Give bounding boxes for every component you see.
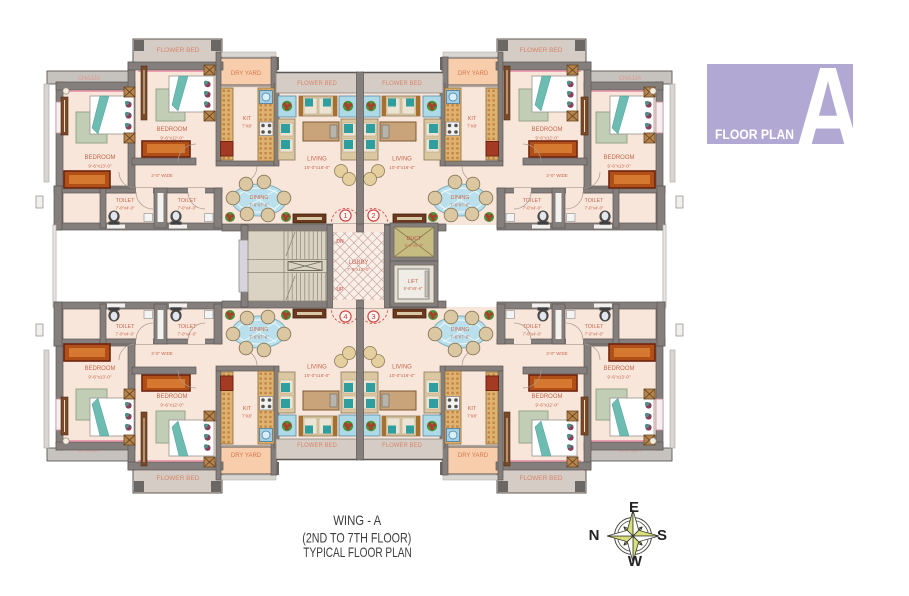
svg-text:3'-0" WIDE: 3'-0" WIDE xyxy=(151,351,172,356)
svg-text:9'-6"x12'-0": 9'-6"x12'-0" xyxy=(535,136,559,141)
svg-text:7'X8': 7'X8' xyxy=(467,414,477,419)
svg-text:9'-6"x12'-0": 9'-6"x12'-0" xyxy=(160,403,184,408)
svg-text:7'-6"X7'-6": 7'-6"X7'-6" xyxy=(249,335,269,340)
svg-text:7'X8': 7'X8' xyxy=(242,414,252,419)
svg-text:KIT: KIT xyxy=(243,116,252,122)
svg-text:UP: UP xyxy=(337,287,345,293)
svg-text:TOILET: TOILET xyxy=(178,198,197,204)
svg-text:S: S xyxy=(657,527,667,544)
svg-text:BEDROOM: BEDROOM xyxy=(531,394,562,400)
svg-text:FLOWER BED: FLOWER BED xyxy=(157,475,200,482)
svg-text:DRY YARD: DRY YARD xyxy=(231,71,262,77)
svg-text:BEDROOM: BEDROOM xyxy=(156,127,187,133)
svg-text:9'-6"x12'-0": 9'-6"x12'-0" xyxy=(160,136,184,141)
svg-text:FLOWER BED: FLOWER BED xyxy=(297,443,337,449)
svg-text:DRY YARD: DRY YARD xyxy=(458,71,489,77)
svg-text:7'-0"x4'-0": 7'-0"x4'-0" xyxy=(523,331,542,336)
svg-text:KIT: KIT xyxy=(468,116,477,122)
svg-text:7'-6"X7'-6": 7'-6"X7'-6" xyxy=(450,203,470,208)
svg-text:BEDROOM: BEDROOM xyxy=(531,127,562,133)
svg-text:7'X8': 7'X8' xyxy=(467,124,477,129)
svg-text:FLOWER BED: FLOWER BED xyxy=(297,81,337,87)
svg-text:LOBBY: LOBBY xyxy=(348,260,368,266)
svg-text:7'-0"x4'-0": 7'-0"x4'-0" xyxy=(585,205,604,210)
svg-text:FLOWER BED: FLOWER BED xyxy=(520,475,563,482)
svg-text:7'-6"X7'-6": 7'-6"X7'-6" xyxy=(450,335,470,340)
svg-text:CHAJJA: CHAJJA xyxy=(619,76,642,82)
svg-text:3: 3 xyxy=(371,312,375,321)
svg-text:9'-6"x13'-0": 9'-6"x13'-0" xyxy=(88,375,112,380)
svg-text:9'-6"x13'-0": 9'-6"x13'-0" xyxy=(607,164,631,169)
svg-text:TOILET: TOILET xyxy=(523,198,542,204)
svg-text:LIFT: LIFT xyxy=(408,279,419,285)
svg-text:4: 4 xyxy=(343,312,347,321)
svg-text:KIT: KIT xyxy=(243,406,252,412)
svg-text:9'-6"x12'-0": 9'-6"x12'-0" xyxy=(535,403,559,408)
svg-text:7'-0"x4'-0": 7'-0"x4'-0" xyxy=(178,331,197,336)
svg-text:WING - A: WING - A xyxy=(333,513,382,528)
svg-text:E: E xyxy=(629,499,639,516)
svg-text:W: W xyxy=(628,553,643,570)
svg-text:DINING: DINING xyxy=(451,195,470,201)
svg-text:BEDROOM: BEDROOM xyxy=(156,394,187,400)
svg-text:10'-0"x16'-0": 10'-0"x16'-0" xyxy=(389,373,415,378)
svg-text:DRY YARD: DRY YARD xyxy=(458,453,489,459)
svg-text:LIVING: LIVING xyxy=(307,157,327,163)
svg-text:TOILET: TOILET xyxy=(116,324,135,330)
svg-text:10'-0"x16'-0": 10'-0"x16'-0" xyxy=(389,165,415,170)
svg-text:TOILET: TOILET xyxy=(585,324,604,330)
svg-text:(2ND TO 7TH FLOOR): (2ND TO 7TH FLOOR) xyxy=(302,531,411,546)
svg-text:7'-0"x4'-0": 7'-0"x4'-0" xyxy=(523,205,542,210)
svg-text:DRY YARD: DRY YARD xyxy=(231,453,262,459)
svg-text:5'-6"x5'-6": 5'-6"x5'-6" xyxy=(405,243,424,248)
svg-text:10'-0"x16'-0": 10'-0"x16'-0" xyxy=(304,373,330,378)
svg-text:7'-0"x4'-0": 7'-0"x4'-0" xyxy=(116,205,135,210)
svg-text:10'-0"x16'-0": 10'-0"x16'-0" xyxy=(304,165,330,170)
svg-text:BEDROOM: BEDROOM xyxy=(603,366,634,372)
svg-text:TOILET: TOILET xyxy=(585,198,604,204)
svg-text:LIVING: LIVING xyxy=(307,365,327,371)
svg-text:LIVING: LIVING xyxy=(392,157,412,163)
svg-text:TYPICAL FLOOR PLAN: TYPICAL FLOOR PLAN xyxy=(303,545,412,560)
svg-text:5'-6"x5'-6": 5'-6"x5'-6" xyxy=(404,286,423,291)
svg-text:DN: DN xyxy=(336,239,344,245)
svg-text:7'-0"x4'-0": 7'-0"x4'-0" xyxy=(116,331,135,336)
svg-text:N: N xyxy=(589,527,600,544)
svg-text:DINING: DINING xyxy=(250,327,269,333)
svg-text:FLOOR PLAN: FLOOR PLAN xyxy=(715,127,794,142)
svg-text:TOILET: TOILET xyxy=(116,198,135,204)
svg-text:FLOWER BED: FLOWER BED xyxy=(382,443,422,449)
svg-text:9'-6"x13'-0": 9'-6"x13'-0" xyxy=(88,164,112,169)
svg-text:7'-6"X7'-6": 7'-6"X7'-6" xyxy=(249,203,269,208)
svg-text:DUCT: DUCT xyxy=(407,236,422,242)
svg-text:FLOWER BED: FLOWER BED xyxy=(157,47,200,54)
svg-text:CHAJJA: CHAJJA xyxy=(78,76,101,82)
svg-text:A: A xyxy=(795,43,861,175)
svg-text:3'-0" WIDE: 3'-0" WIDE xyxy=(546,173,567,178)
svg-text:BEDROOM: BEDROOM xyxy=(603,155,634,161)
svg-text:DINING: DINING xyxy=(250,195,269,201)
svg-text:1: 1 xyxy=(343,211,347,220)
svg-text:LIVING: LIVING xyxy=(392,365,412,371)
svg-text:7'-0"x4'-0": 7'-0"x4'-0" xyxy=(178,205,197,210)
svg-text:7'-6"x12'-0": 7'-6"x12'-0" xyxy=(347,267,371,272)
svg-text:3'-0" WIDE: 3'-0" WIDE xyxy=(546,351,567,356)
svg-text:9'-6"x13'-0": 9'-6"x13'-0" xyxy=(607,375,631,380)
svg-text:7'-0"x4'-0": 7'-0"x4'-0" xyxy=(585,331,604,336)
svg-text:FLOWER BED: FLOWER BED xyxy=(382,81,422,87)
svg-text:FLOWER BED: FLOWER BED xyxy=(520,47,563,54)
svg-text:7'X8': 7'X8' xyxy=(242,124,252,129)
svg-text:DINING: DINING xyxy=(451,327,470,333)
svg-text:BEDROOM: BEDROOM xyxy=(84,366,115,372)
svg-text:3'-0" WIDE: 3'-0" WIDE xyxy=(151,173,172,178)
svg-text:KIT: KIT xyxy=(468,406,477,412)
svg-text:BEDROOM: BEDROOM xyxy=(84,155,115,161)
svg-text:2: 2 xyxy=(371,211,375,220)
